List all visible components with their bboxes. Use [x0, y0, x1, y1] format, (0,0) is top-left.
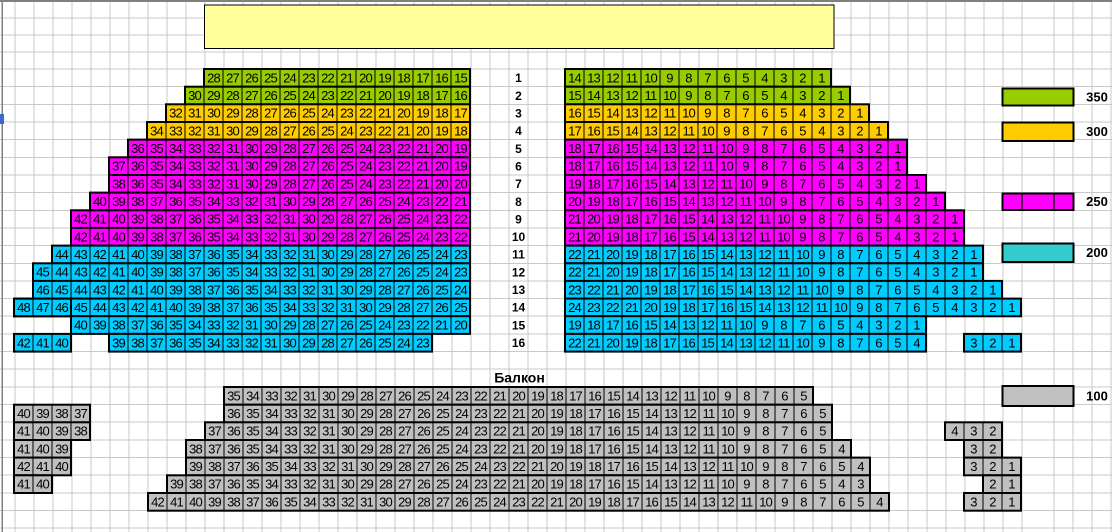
- svg-text:29: 29: [360, 441, 373, 456]
- svg-text:19: 19: [663, 300, 676, 315]
- svg-text:2: 2: [875, 159, 882, 174]
- svg-text:21: 21: [416, 176, 429, 191]
- svg-text:4: 4: [837, 141, 844, 156]
- svg-text:18: 18: [625, 229, 638, 244]
- svg-text:6: 6: [781, 388, 788, 403]
- svg-text:24: 24: [378, 318, 391, 333]
- svg-text:10: 10: [834, 300, 847, 315]
- svg-text:8: 8: [837, 265, 844, 280]
- svg-text:32: 32: [245, 194, 258, 209]
- svg-text:8: 8: [818, 212, 825, 227]
- svg-text:40: 40: [36, 441, 49, 456]
- svg-text:17: 17: [588, 406, 601, 421]
- svg-text:36: 36: [227, 477, 240, 492]
- svg-text:29: 29: [302, 335, 315, 350]
- svg-text:9: 9: [799, 229, 806, 244]
- svg-text:21: 21: [606, 282, 619, 297]
- svg-text:6: 6: [838, 494, 845, 509]
- svg-text:20: 20: [531, 424, 544, 439]
- svg-text:22: 22: [416, 318, 429, 333]
- svg-text:1: 1: [913, 176, 920, 191]
- svg-text:7: 7: [894, 300, 901, 315]
- svg-text:3: 3: [799, 88, 806, 103]
- svg-text:30: 30: [264, 318, 277, 333]
- svg-text:8: 8: [762, 406, 769, 421]
- svg-text:25: 25: [397, 212, 410, 227]
- svg-text:27: 27: [398, 477, 411, 492]
- svg-text:29: 29: [340, 247, 353, 262]
- svg-text:27: 27: [264, 106, 277, 121]
- svg-text:9: 9: [515, 212, 522, 226]
- svg-text:39: 39: [169, 282, 182, 297]
- svg-text:6: 6: [856, 212, 863, 227]
- svg-text:33: 33: [226, 335, 239, 350]
- svg-text:11: 11: [778, 335, 790, 350]
- svg-text:13: 13: [587, 70, 600, 85]
- svg-text:24: 24: [435, 247, 448, 262]
- svg-text:12: 12: [683, 406, 696, 421]
- svg-text:6: 6: [799, 159, 806, 174]
- svg-text:9: 9: [704, 106, 711, 121]
- svg-text:9: 9: [856, 300, 863, 315]
- svg-text:3: 3: [856, 141, 863, 156]
- svg-text:40: 40: [169, 300, 182, 315]
- svg-text:35: 35: [169, 318, 182, 333]
- svg-text:33: 33: [284, 477, 297, 492]
- svg-text:23: 23: [474, 424, 487, 439]
- svg-text:22: 22: [512, 459, 525, 474]
- svg-text:4: 4: [875, 194, 882, 209]
- svg-text:38: 38: [150, 212, 163, 227]
- svg-text:28: 28: [340, 229, 353, 244]
- svg-text:5: 5: [894, 265, 901, 280]
- svg-text:14: 14: [663, 318, 676, 333]
- svg-text:350: 350: [1086, 90, 1108, 105]
- svg-text:1: 1: [913, 318, 920, 333]
- svg-text:33: 33: [265, 388, 278, 403]
- svg-text:33: 33: [284, 441, 297, 456]
- svg-text:38: 38: [189, 441, 202, 456]
- svg-text:5: 5: [800, 388, 807, 403]
- svg-text:10: 10: [663, 88, 676, 103]
- svg-text:16: 16: [625, 318, 638, 333]
- svg-text:10: 10: [758, 194, 771, 209]
- svg-text:42: 42: [74, 229, 87, 244]
- svg-text:13: 13: [682, 318, 695, 333]
- svg-text:18: 18: [416, 88, 429, 103]
- svg-text:14: 14: [720, 247, 733, 262]
- svg-text:8: 8: [723, 106, 730, 121]
- svg-text:38: 38: [227, 494, 240, 509]
- svg-text:40: 40: [17, 406, 30, 421]
- svg-text:44: 44: [55, 247, 68, 262]
- svg-text:20: 20: [435, 176, 448, 191]
- svg-text:14: 14: [758, 300, 771, 315]
- svg-text:40: 40: [189, 494, 202, 509]
- svg-text:11: 11: [759, 212, 771, 227]
- svg-text:1: 1: [951, 229, 958, 244]
- svg-text:4: 4: [761, 70, 768, 85]
- svg-text:34: 34: [207, 194, 220, 209]
- svg-text:16: 16: [435, 70, 448, 85]
- svg-text:15: 15: [644, 318, 657, 333]
- svg-text:6: 6: [723, 70, 730, 85]
- svg-text:22: 22: [587, 282, 600, 297]
- svg-text:15: 15: [682, 229, 695, 244]
- svg-text:34: 34: [265, 477, 278, 492]
- svg-text:23: 23: [474, 441, 487, 456]
- svg-text:37: 37: [112, 159, 125, 174]
- svg-text:26: 26: [435, 300, 448, 315]
- svg-text:14: 14: [720, 335, 733, 350]
- svg-text:20: 20: [531, 406, 544, 421]
- svg-text:19: 19: [606, 229, 619, 244]
- svg-text:39: 39: [112, 194, 125, 209]
- svg-text:11: 11: [512, 248, 525, 262]
- svg-text:20: 20: [378, 88, 391, 103]
- svg-text:18: 18: [644, 247, 657, 262]
- svg-text:41: 41: [17, 477, 30, 492]
- svg-text:33: 33: [322, 494, 335, 509]
- svg-text:30: 30: [283, 194, 296, 209]
- svg-text:31: 31: [321, 282, 334, 297]
- svg-text:24: 24: [359, 159, 372, 174]
- svg-text:26: 26: [321, 141, 334, 156]
- svg-text:37: 37: [207, 282, 220, 297]
- svg-text:1: 1: [894, 159, 901, 174]
- svg-text:29: 29: [359, 282, 372, 297]
- svg-text:19: 19: [397, 88, 410, 103]
- svg-text:19: 19: [550, 441, 563, 456]
- svg-text:29: 29: [321, 229, 334, 244]
- svg-text:28: 28: [321, 335, 334, 350]
- svg-text:27: 27: [378, 247, 391, 262]
- svg-text:21: 21: [359, 88, 372, 103]
- svg-text:3: 3: [932, 265, 939, 280]
- svg-text:38: 38: [208, 459, 221, 474]
- svg-text:10: 10: [721, 441, 734, 456]
- svg-text:40: 40: [55, 459, 68, 474]
- svg-text:3: 3: [515, 106, 522, 120]
- svg-text:18: 18: [644, 335, 657, 350]
- svg-text:23: 23: [454, 247, 467, 262]
- svg-text:25: 25: [416, 247, 429, 262]
- svg-text:36: 36: [131, 141, 144, 156]
- svg-text:41: 41: [17, 441, 30, 456]
- svg-text:23: 23: [512, 494, 525, 509]
- svg-text:38: 38: [112, 318, 125, 333]
- svg-text:26: 26: [359, 335, 372, 350]
- svg-text:14: 14: [587, 88, 600, 103]
- svg-text:11: 11: [703, 477, 715, 492]
- svg-text:44: 44: [55, 265, 68, 280]
- svg-text:21: 21: [493, 388, 506, 403]
- svg-text:14: 14: [663, 176, 676, 191]
- svg-text:15: 15: [625, 159, 638, 174]
- svg-text:5: 5: [838, 459, 845, 474]
- svg-text:8: 8: [781, 459, 788, 474]
- svg-text:26: 26: [378, 229, 391, 244]
- svg-text:15: 15: [626, 441, 639, 456]
- svg-text:16: 16: [607, 406, 620, 421]
- svg-text:13: 13: [702, 494, 715, 509]
- svg-text:10: 10: [721, 424, 734, 439]
- svg-text:26: 26: [321, 176, 334, 191]
- svg-text:28: 28: [283, 159, 296, 174]
- svg-text:4: 4: [951, 424, 958, 439]
- svg-text:12: 12: [739, 229, 752, 244]
- svg-text:31: 31: [302, 247, 315, 262]
- svg-text:12: 12: [739, 212, 752, 227]
- svg-text:7: 7: [799, 176, 806, 191]
- svg-text:39: 39: [93, 318, 106, 333]
- svg-text:45: 45: [55, 282, 68, 297]
- svg-text:30: 30: [341, 406, 354, 421]
- svg-text:4: 4: [951, 300, 958, 315]
- svg-text:40: 40: [131, 265, 144, 280]
- svg-text:15: 15: [664, 494, 677, 509]
- svg-text:7: 7: [781, 406, 788, 421]
- svg-text:30: 30: [321, 265, 334, 280]
- svg-text:5: 5: [837, 318, 844, 333]
- svg-text:8: 8: [515, 195, 522, 209]
- svg-text:25: 25: [455, 459, 468, 474]
- svg-text:34: 34: [169, 159, 182, 174]
- svg-text:19: 19: [625, 265, 638, 280]
- svg-text:7: 7: [856, 335, 863, 350]
- svg-text:41: 41: [93, 212, 106, 227]
- svg-text:27: 27: [245, 88, 258, 103]
- svg-text:13: 13: [512, 283, 526, 297]
- svg-text:21: 21: [587, 265, 600, 280]
- svg-text:37: 37: [150, 194, 163, 209]
- svg-text:30: 30: [379, 494, 392, 509]
- svg-text:28: 28: [226, 88, 239, 103]
- svg-text:19: 19: [550, 424, 563, 439]
- svg-text:33: 33: [284, 424, 297, 439]
- svg-text:12: 12: [758, 265, 771, 280]
- svg-text:11: 11: [702, 141, 714, 156]
- svg-text:10: 10: [512, 230, 526, 244]
- svg-text:32: 32: [322, 459, 335, 474]
- svg-text:9: 9: [743, 477, 750, 492]
- svg-text:8: 8: [761, 159, 768, 174]
- svg-text:17: 17: [569, 388, 582, 403]
- svg-text:31: 31: [245, 318, 258, 333]
- svg-text:8: 8: [780, 176, 787, 191]
- svg-text:20: 20: [359, 70, 372, 85]
- svg-text:24: 24: [454, 282, 467, 297]
- svg-text:30: 30: [245, 159, 258, 174]
- svg-text:31: 31: [322, 441, 335, 456]
- svg-text:8: 8: [685, 70, 692, 85]
- svg-text:2: 2: [951, 247, 958, 262]
- svg-text:24: 24: [455, 441, 468, 456]
- svg-text:1: 1: [818, 70, 825, 85]
- svg-text:39: 39: [150, 247, 163, 262]
- svg-text:44: 44: [74, 282, 87, 297]
- svg-text:31: 31: [322, 406, 335, 421]
- svg-text:24: 24: [435, 265, 448, 280]
- svg-text:13: 13: [606, 88, 619, 103]
- svg-text:30: 30: [226, 123, 239, 138]
- svg-text:12: 12: [512, 265, 526, 279]
- svg-text:33: 33: [302, 300, 315, 315]
- svg-text:10: 10: [796, 335, 809, 350]
- svg-text:31: 31: [322, 477, 335, 492]
- svg-text:22: 22: [568, 247, 581, 262]
- svg-text:25: 25: [416, 265, 429, 280]
- svg-text:4: 4: [837, 159, 844, 174]
- svg-text:33: 33: [245, 212, 258, 227]
- svg-text:6: 6: [780, 123, 787, 138]
- svg-text:24: 24: [416, 229, 429, 244]
- svg-text:14: 14: [512, 301, 526, 315]
- svg-text:19: 19: [568, 176, 581, 191]
- svg-text:28: 28: [302, 318, 315, 333]
- svg-text:27: 27: [416, 300, 429, 315]
- svg-text:37: 37: [208, 477, 221, 492]
- svg-text:14: 14: [644, 159, 657, 174]
- svg-text:39: 39: [170, 477, 183, 492]
- svg-text:33: 33: [226, 194, 239, 209]
- svg-text:3: 3: [970, 494, 977, 509]
- svg-text:38: 38: [112, 176, 125, 191]
- svg-text:14: 14: [720, 265, 733, 280]
- svg-text:40: 40: [150, 282, 163, 297]
- svg-text:18: 18: [625, 212, 638, 227]
- svg-text:19: 19: [531, 388, 544, 403]
- svg-text:41: 41: [36, 335, 49, 350]
- svg-text:3: 3: [818, 106, 825, 121]
- svg-text:10: 10: [720, 159, 733, 174]
- svg-text:21: 21: [454, 194, 467, 209]
- svg-text:4: 4: [515, 124, 522, 138]
- svg-text:8: 8: [875, 300, 882, 315]
- svg-text:33: 33: [284, 406, 297, 421]
- svg-text:37: 37: [246, 494, 259, 509]
- svg-text:11: 11: [759, 229, 771, 244]
- svg-text:14: 14: [683, 494, 696, 509]
- svg-text:24: 24: [359, 141, 372, 156]
- svg-text:38: 38: [74, 424, 87, 439]
- svg-text:32: 32: [207, 159, 220, 174]
- svg-text:33: 33: [264, 247, 277, 262]
- svg-text:42: 42: [131, 300, 144, 315]
- svg-text:26: 26: [340, 318, 353, 333]
- svg-text:27: 27: [378, 265, 391, 280]
- svg-text:2: 2: [894, 176, 901, 191]
- svg-text:6: 6: [515, 159, 522, 173]
- svg-text:28: 28: [417, 494, 430, 509]
- svg-text:20: 20: [531, 441, 544, 456]
- svg-text:9: 9: [780, 194, 787, 209]
- svg-text:16: 16: [607, 424, 620, 439]
- svg-text:4: 4: [913, 265, 920, 280]
- svg-text:32: 32: [303, 441, 316, 456]
- svg-text:33: 33: [188, 176, 201, 191]
- svg-text:36: 36: [207, 265, 220, 280]
- svg-text:23: 23: [454, 265, 467, 280]
- svg-text:11: 11: [664, 106, 676, 121]
- svg-text:18: 18: [568, 141, 581, 156]
- svg-text:37: 37: [188, 265, 201, 280]
- svg-text:33: 33: [169, 123, 182, 138]
- svg-text:2: 2: [989, 300, 996, 315]
- svg-text:14: 14: [701, 229, 714, 244]
- svg-text:30: 30: [302, 229, 315, 244]
- svg-text:30: 30: [360, 459, 373, 474]
- svg-text:32: 32: [188, 123, 201, 138]
- svg-text:10: 10: [815, 282, 828, 297]
- svg-text:35: 35: [188, 194, 201, 209]
- svg-text:17: 17: [435, 88, 448, 103]
- svg-text:16: 16: [663, 212, 676, 227]
- svg-text:11: 11: [683, 123, 695, 138]
- svg-text:36: 36: [131, 176, 144, 191]
- svg-text:10: 10: [701, 123, 714, 138]
- svg-text:28: 28: [207, 70, 220, 85]
- svg-text:7: 7: [781, 424, 788, 439]
- svg-text:29: 29: [302, 194, 315, 209]
- svg-text:34: 34: [283, 300, 296, 315]
- svg-text:6: 6: [837, 194, 844, 209]
- svg-text:26: 26: [264, 88, 277, 103]
- svg-text:4: 4: [894, 229, 901, 244]
- svg-text:39: 39: [189, 459, 202, 474]
- svg-text:24: 24: [283, 70, 296, 85]
- svg-text:4: 4: [932, 282, 939, 297]
- svg-text:26: 26: [417, 424, 430, 439]
- svg-text:35: 35: [150, 141, 163, 156]
- svg-text:9: 9: [742, 159, 749, 174]
- svg-text:17: 17: [663, 265, 676, 280]
- svg-text:12: 12: [720, 194, 733, 209]
- svg-text:18: 18: [569, 477, 582, 492]
- svg-text:21: 21: [378, 106, 391, 121]
- svg-text:13: 13: [701, 194, 714, 209]
- svg-text:28: 28: [379, 406, 392, 421]
- svg-text:27: 27: [302, 141, 315, 156]
- svg-text:6: 6: [818, 318, 825, 333]
- svg-text:34: 34: [169, 141, 182, 156]
- svg-text:10: 10: [702, 388, 715, 403]
- svg-text:21: 21: [587, 335, 600, 350]
- svg-text:1: 1: [894, 141, 901, 156]
- svg-text:25: 25: [436, 441, 449, 456]
- svg-text:18: 18: [606, 194, 619, 209]
- svg-text:16: 16: [626, 459, 639, 474]
- svg-text:12: 12: [701, 176, 714, 191]
- svg-text:8: 8: [818, 229, 825, 244]
- svg-text:3: 3: [970, 441, 977, 456]
- svg-text:17: 17: [644, 212, 657, 227]
- svg-text:17: 17: [606, 176, 619, 191]
- svg-text:38: 38: [189, 477, 202, 492]
- svg-text:12: 12: [683, 424, 696, 439]
- svg-text:21: 21: [512, 477, 525, 492]
- svg-text:11: 11: [703, 424, 715, 439]
- svg-text:30: 30: [341, 424, 354, 439]
- svg-text:6: 6: [799, 141, 806, 156]
- svg-text:19: 19: [625, 247, 638, 262]
- svg-text:24: 24: [436, 388, 449, 403]
- svg-text:30: 30: [302, 212, 315, 227]
- svg-text:32: 32: [284, 388, 297, 403]
- svg-text:37: 37: [169, 229, 182, 244]
- svg-text:7: 7: [742, 106, 749, 121]
- svg-text:20: 20: [435, 141, 448, 156]
